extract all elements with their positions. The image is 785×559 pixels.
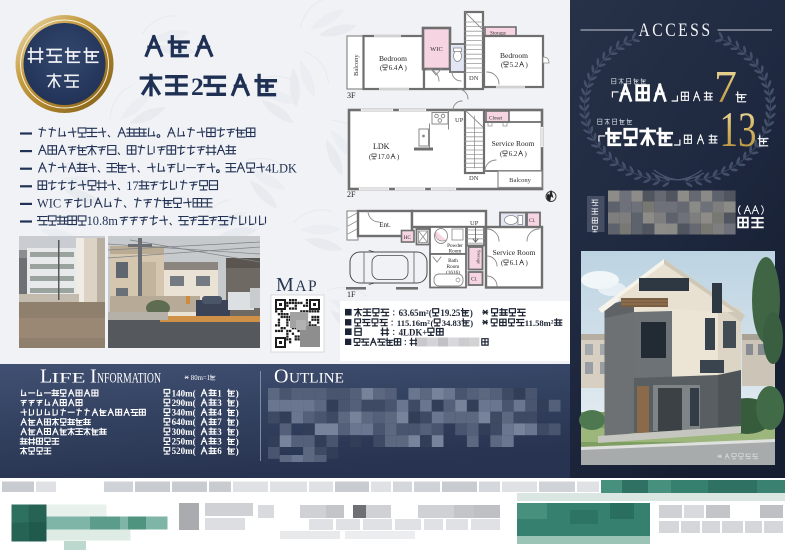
svg-text:IFE: IFE	[52, 371, 86, 387]
svg-text:): )	[405, 65, 407, 72]
svg-text:DN: DN	[469, 175, 479, 182]
svg-text:): )	[397, 154, 399, 161]
svg-text:17: 17	[126, 179, 138, 193]
svg-text:Bedroom: Bedroom	[379, 54, 407, 63]
svg-text:6.2: 6.2	[509, 151, 518, 158]
svg-text:LDK: LDK	[373, 142, 390, 151]
svg-text:UP: UP	[455, 117, 464, 124]
svg-text:3: 3	[217, 398, 222, 408]
svg-text:): )	[236, 408, 239, 418]
svg-text:): )	[236, 388, 239, 398]
svg-text:MAP: MAP	[276, 274, 318, 296]
svg-text:4LDK: 4LDK	[265, 161, 297, 175]
svg-text:): )	[236, 437, 239, 447]
svg-text:): )	[526, 260, 528, 267]
svg-text:HC: HC	[404, 235, 412, 241]
svg-text:): )	[525, 151, 527, 158]
svg-text:Bedroom: Bedroom	[500, 51, 528, 60]
svg-text:5.2: 5.2	[510, 62, 519, 69]
svg-text:115.16m²: 115.16m²	[397, 318, 430, 328]
svg-text:340m(: 340m(	[172, 408, 196, 418]
svg-text:): )	[526, 62, 528, 69]
svg-text:): )	[470, 318, 473, 328]
svg-text:3: 3	[217, 427, 222, 437]
svg-text:(: (	[429, 308, 432, 318]
svg-text:11.58m²: 11.58m²	[525, 318, 554, 328]
svg-text:Cl.: Cl.	[471, 277, 477, 283]
svg-text:7: 7	[217, 417, 222, 427]
svg-text:): )	[470, 308, 473, 318]
svg-text:3: 3	[217, 437, 222, 447]
svg-text:4LDK+: 4LDK+	[399, 328, 428, 338]
svg-text:6: 6	[217, 446, 222, 456]
svg-text:Service Room: Service Room	[493, 248, 536, 257]
svg-text:): )	[236, 398, 239, 408]
svg-text:80m=1: 80m=1	[191, 375, 210, 382]
svg-text:140m(: 140m(	[172, 388, 196, 398]
svg-text:19.25: 19.25	[440, 308, 461, 318]
svg-text:4: 4	[217, 408, 222, 418]
svg-text:UTLINE: UTLINE	[289, 371, 344, 387]
svg-text:(: (	[431, 318, 434, 328]
svg-text:520m(: 520m(	[172, 446, 196, 456]
svg-text:I: I	[90, 366, 97, 388]
svg-text:63.65m²: 63.65m²	[399, 308, 429, 318]
svg-text:3F: 3F	[347, 91, 356, 100]
svg-text:250m(: 250m(	[172, 437, 196, 447]
svg-text:Cl.: Cl.	[529, 218, 535, 224]
svg-text:): )	[236, 446, 239, 456]
svg-text:Ent.: Ent.	[379, 221, 391, 229]
svg-text:17.0: 17.0	[378, 154, 390, 161]
svg-text:Balcony: Balcony	[509, 177, 531, 184]
svg-text:Balcony: Balcony	[353, 54, 360, 76]
svg-text:NFORMATION: NFORMATION	[97, 371, 161, 387]
svg-text:WIC: WIC	[430, 46, 443, 53]
svg-text:UP: UP	[470, 220, 479, 227]
svg-text:6.1: 6.1	[510, 260, 519, 267]
svg-text:6.4: 6.4	[389, 65, 398, 72]
svg-text:1F: 1F	[347, 290, 356, 299]
svg-text:2F: 2F	[347, 190, 356, 199]
svg-text:WIC: WIC	[37, 197, 61, 211]
svg-text:Closet: Closet	[489, 116, 503, 122]
svg-text:640m(: 640m(	[172, 417, 196, 427]
svg-text:Service Room: Service Room	[492, 139, 535, 148]
svg-text:O: O	[274, 366, 288, 388]
svg-text:ACCESS: ACCESS	[639, 20, 713, 41]
svg-text:10.8m: 10.8m	[87, 214, 119, 228]
svg-text:13: 13	[720, 101, 757, 157]
svg-text:34.83: 34.83	[442, 318, 461, 328]
svg-text:2: 2	[191, 72, 204, 101]
svg-text:L: L	[40, 366, 52, 388]
svg-text:DN: DN	[469, 75, 479, 82]
svg-text:300m(: 300m(	[172, 427, 196, 437]
svg-text:): )	[236, 417, 239, 427]
svg-text:1: 1	[217, 388, 222, 398]
svg-text:): )	[236, 427, 239, 437]
svg-text:290m(: 290m(	[172, 398, 196, 408]
svg-text:Storage: Storage	[477, 250, 482, 264]
